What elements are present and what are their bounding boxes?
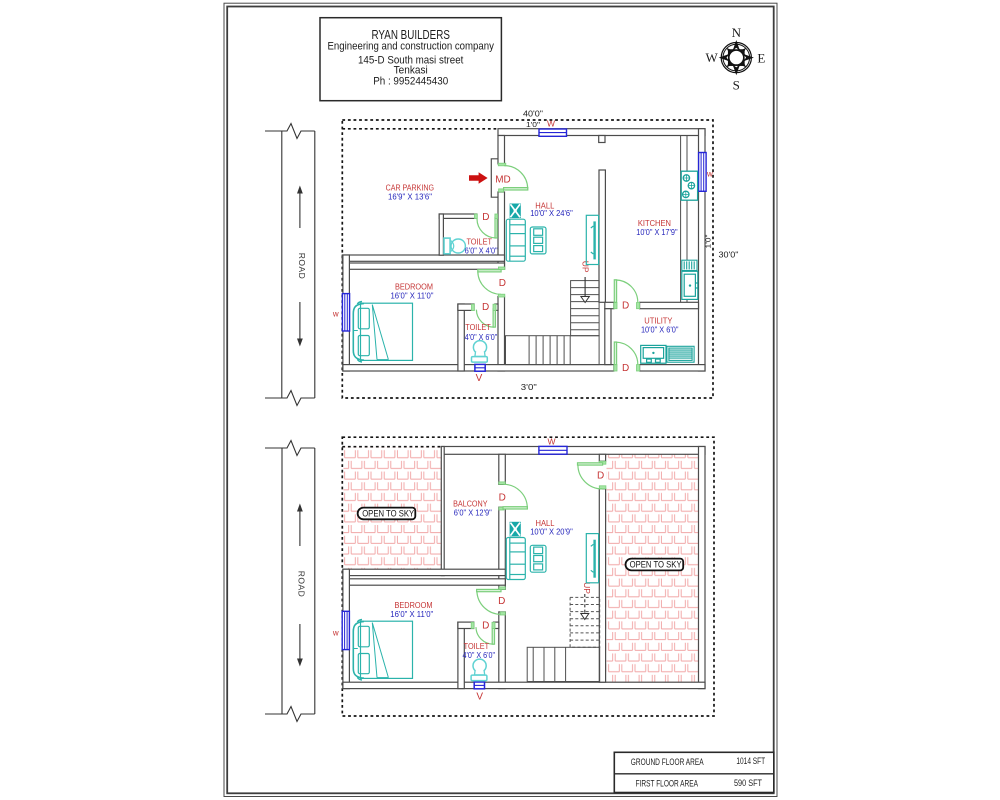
- svg-text:UTILITY: UTILITY: [644, 316, 672, 326]
- svg-text:KITCHEN: KITCHEN: [638, 218, 671, 228]
- svg-text:TOILET: TOILET: [464, 641, 490, 651]
- svg-text:Ph : 9952445430: Ph : 9952445430: [373, 75, 448, 87]
- svg-text:16'0" X 11'0": 16'0" X 11'0": [391, 292, 434, 301]
- svg-text:W: W: [547, 436, 555, 446]
- svg-text:6'0" X 12'9": 6'0" X 12'9": [454, 508, 492, 517]
- svg-text:V: V: [476, 691, 483, 702]
- svg-text:OPEN TO SKY: OPEN TO SKY: [362, 508, 414, 518]
- svg-text:w: w: [332, 629, 339, 638]
- svg-text:D: D: [482, 621, 489, 632]
- svg-text:16'9" X 13'6": 16'9" X 13'6": [388, 193, 432, 202]
- svg-text:D: D: [482, 212, 489, 223]
- svg-text:V: V: [476, 373, 483, 384]
- svg-text:E: E: [757, 51, 765, 66]
- svg-text:10'0" X 17'9": 10'0" X 17'9": [636, 228, 677, 237]
- svg-text:S: S: [733, 78, 740, 93]
- svg-text:30'0": 30'0": [719, 251, 739, 260]
- svg-text:D: D: [498, 596, 505, 607]
- svg-text:w: w: [706, 169, 713, 178]
- svg-text:3'0": 3'0": [521, 383, 537, 392]
- svg-text:w: w: [332, 309, 339, 318]
- svg-text:TOILET: TOILET: [466, 236, 492, 246]
- svg-text:BEDROOM: BEDROOM: [395, 282, 433, 292]
- svg-text:ROAD: ROAD: [297, 253, 307, 280]
- svg-text:UP: UP: [582, 582, 592, 594]
- svg-text:BEDROOM: BEDROOM: [395, 600, 433, 610]
- svg-text:D: D: [499, 492, 506, 503]
- svg-text:10'0" X 24'6": 10'0" X 24'6": [530, 209, 573, 218]
- svg-text:10'0" X 6'0": 10'0" X 6'0": [641, 326, 679, 335]
- svg-text:10'0" X 20'9": 10'0" X 20'9": [530, 527, 573, 536]
- svg-text:FIRST FLOOR AREA: FIRST FLOOR AREA: [636, 778, 698, 788]
- svg-text:TOILET: TOILET: [465, 322, 491, 332]
- svg-text:W: W: [547, 118, 555, 128]
- svg-text:6'0" X 4'0": 6'0" X 4'0": [465, 246, 498, 255]
- svg-text:1'0": 1'0": [704, 234, 713, 249]
- svg-text:16'0" X 11'0": 16'0" X 11'0": [390, 610, 433, 619]
- svg-text:1'0": 1'0": [526, 120, 541, 129]
- svg-text:D: D: [597, 471, 604, 482]
- svg-text:OPEN TO SKY: OPEN TO SKY: [630, 560, 682, 570]
- svg-text:4'0" X 6'0": 4'0" X 6'0": [465, 333, 498, 342]
- svg-text:D: D: [499, 278, 506, 289]
- svg-text:MD: MD: [495, 174, 511, 185]
- svg-text:Engineering and construction c: Engineering and construction company: [328, 41, 495, 53]
- svg-text:D: D: [622, 300, 629, 311]
- svg-text:4'0" X 6'0": 4'0" X 6'0": [463, 651, 496, 660]
- svg-text:CAR PARKING: CAR PARKING: [386, 183, 434, 193]
- svg-text:D: D: [482, 302, 489, 313]
- svg-text:BALCONY: BALCONY: [453, 498, 488, 508]
- svg-text:UP: UP: [581, 261, 591, 273]
- svg-text:590 SFT: 590 SFT: [734, 778, 763, 788]
- svg-text:D: D: [622, 363, 629, 374]
- svg-text:W: W: [705, 50, 718, 65]
- svg-text:40'0": 40'0": [523, 109, 543, 118]
- svg-text:1014 SFT: 1014 SFT: [736, 756, 765, 766]
- svg-text:ROAD: ROAD: [296, 571, 306, 598]
- svg-text:GROUND FLOOR AREA: GROUND FLOOR AREA: [631, 757, 704, 767]
- svg-text:N: N: [732, 25, 742, 40]
